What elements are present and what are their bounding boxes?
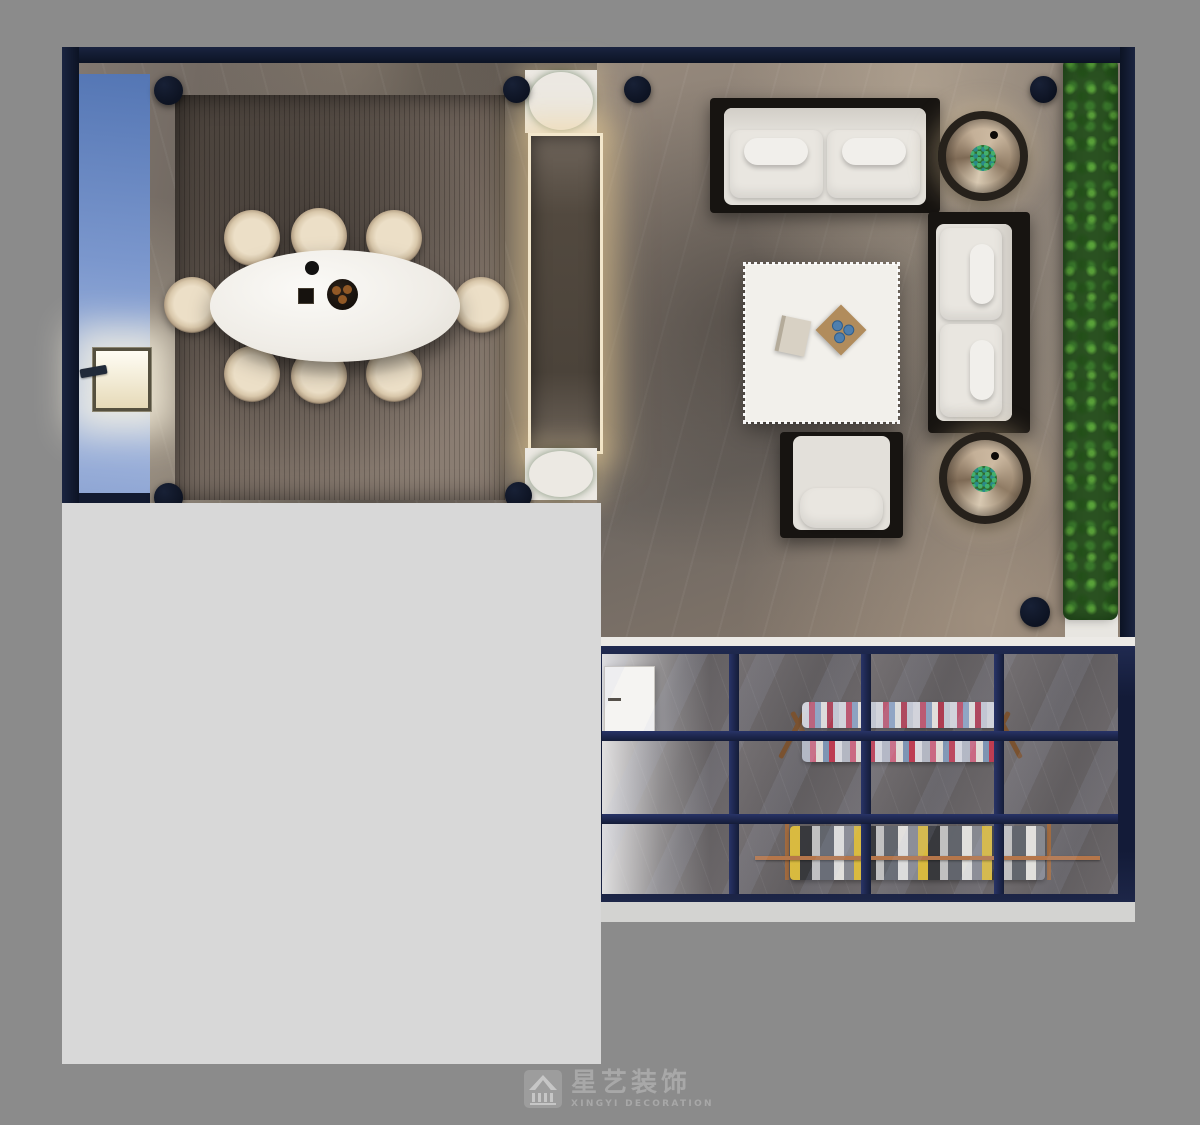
serving-tray — [327, 279, 358, 310]
planter-box — [525, 448, 597, 500]
planter-box — [525, 70, 597, 133]
tray-item — [343, 285, 352, 294]
glass-frame-mullion — [861, 654, 871, 894]
brand-text-block: 星艺装饰 XINGYI DECORATION — [571, 1070, 714, 1109]
lumbar-pillow — [970, 244, 994, 304]
structural-column — [154, 76, 183, 105]
lumbar-pillow — [842, 138, 906, 165]
structural-column — [624, 76, 651, 103]
armchair — [780, 432, 903, 538]
table-plant — [971, 466, 997, 492]
lit-wall-niche — [93, 348, 151, 411]
round-side-table — [939, 432, 1031, 524]
decor-cup — [991, 452, 999, 460]
table-plant — [970, 145, 996, 171]
lumbar-pillow — [744, 138, 808, 165]
sofa-backrest — [724, 108, 926, 132]
cloakroom-glass-partition — [595, 646, 1135, 902]
square-plate — [298, 288, 314, 304]
logo-roof-shape — [529, 1075, 557, 1090]
dining-table — [210, 250, 460, 362]
grass-plant — [529, 451, 593, 497]
decor-bowl — [305, 261, 319, 275]
seat-cushion — [800, 488, 883, 528]
brand-watermark: 星艺装饰 XINGYI DECORATION — [524, 1066, 714, 1112]
glass-frame-mullion — [602, 814, 1118, 824]
three-seat-sofa — [710, 98, 940, 213]
decor-cup — [990, 131, 998, 139]
house-logo-icon — [524, 1070, 562, 1108]
floor-light-channel — [528, 133, 603, 454]
interior-render-scene: 星艺装饰 XINGYI DECORATION — [0, 0, 1200, 1125]
two-seat-sofa — [928, 212, 1030, 433]
logo-pillars-shape — [532, 1093, 554, 1102]
coffee-table — [745, 264, 898, 422]
table-edge-trim — [743, 262, 900, 424]
hedge-plants — [1063, 58, 1118, 620]
glass-frame-mullion — [729, 654, 739, 894]
tray-item — [332, 286, 341, 295]
brand-name-en: XINGYI DECORATION — [571, 1100, 714, 1109]
structural-column — [1030, 76, 1057, 103]
blue-accent-wall — [79, 74, 150, 493]
glass-reflection — [602, 654, 1118, 894]
structural-column — [1020, 597, 1050, 627]
tray-item — [338, 295, 347, 304]
round-side-table — [938, 111, 1028, 201]
glass-frame-mullion — [602, 731, 1118, 741]
wall-right — [1120, 47, 1135, 638]
grass-plant — [529, 72, 593, 130]
brand-name-cn: 星艺装饰 — [571, 1070, 714, 1096]
glass-frame-mullion — [994, 654, 1004, 894]
unrendered-area — [62, 503, 601, 1064]
structural-column — [503, 76, 530, 103]
wall-top — [62, 47, 1135, 63]
logo-base-shape — [530, 1103, 556, 1105]
lumbar-pillow — [970, 340, 994, 400]
wall-strip — [595, 902, 1135, 922]
wall-left — [62, 47, 79, 503]
